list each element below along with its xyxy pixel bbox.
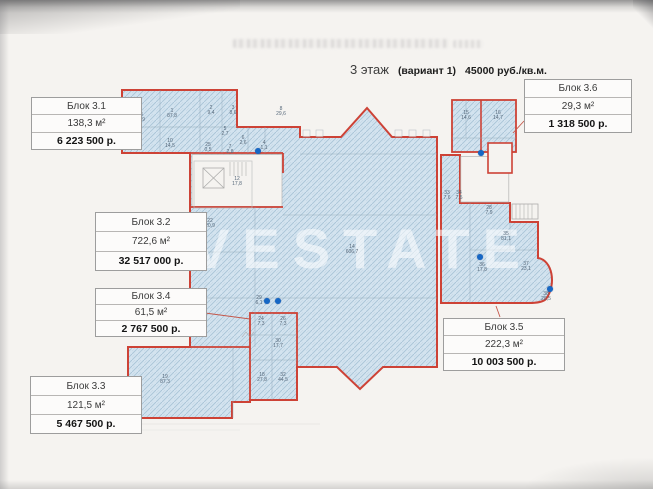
block-price: 10 003 500 р.: [444, 354, 564, 370]
block-3-1-info-box: Блок 3.1 138,3 м² 6 223 500 р.: [31, 97, 142, 150]
block-name: Блок 3.4: [96, 289, 206, 305]
floor-label: 3 этаж: [350, 62, 389, 77]
block-price: 1 318 500 р.: [525, 115, 631, 132]
block-3-5-info-box: Блок 3.5 222,3 м² 10 003 500 р.: [443, 318, 565, 371]
block-area: 722,6 м²: [96, 232, 206, 251]
page-title: 3 этаж (вариант 1) 45000 руб./кв.м.: [350, 62, 547, 77]
block-area: 222,3 м²: [444, 336, 564, 353]
block-name: Блок 3.5: [444, 319, 564, 336]
scanned-floor-plan-page: VESTATE 2313,9187,81014,529,438,6829,652…: [0, 0, 653, 489]
block-price: 2 767 500 р.: [96, 321, 206, 336]
block-3-5-outline: [441, 155, 552, 303]
block-area: 61,5 м²: [96, 305, 206, 321]
block-3-4-info-box: Блок 3.4 61,5 м² 2 767 500 р.: [95, 288, 207, 337]
dimension-lines: [128, 424, 320, 430]
stair-icon-right: [512, 204, 538, 219]
block-area: 121,5 м²: [31, 396, 141, 415]
block-area: 138,3 м²: [32, 115, 141, 132]
block-3-3-info-box: Блок 3.3 121,5 м² 5 467 500 р.: [30, 376, 142, 434]
price-rate-label: 45000 руб./кв.м.: [465, 65, 547, 77]
block-name: Блок 3.6: [525, 80, 631, 98]
variant-label: (вариант 1): [398, 65, 456, 77]
block-price: 32 517 000 р.: [96, 252, 206, 270]
block-price: 6 223 500 р.: [32, 133, 141, 149]
block-name: Блок 3.3: [31, 377, 141, 396]
block-area: 29,3 м²: [525, 98, 631, 116]
block-name: Блок 3.1: [32, 98, 141, 115]
block-name: Блок 3.2: [96, 213, 206, 232]
block-price: 5 467 500 р.: [31, 415, 141, 433]
block-3-6-info-box: Блок 3.6 29,3 м² 1 318 500 р.: [524, 79, 632, 133]
block-3-2-info-box: Блок 3.2 722,6 м² 32 517 000 р.: [95, 212, 207, 271]
